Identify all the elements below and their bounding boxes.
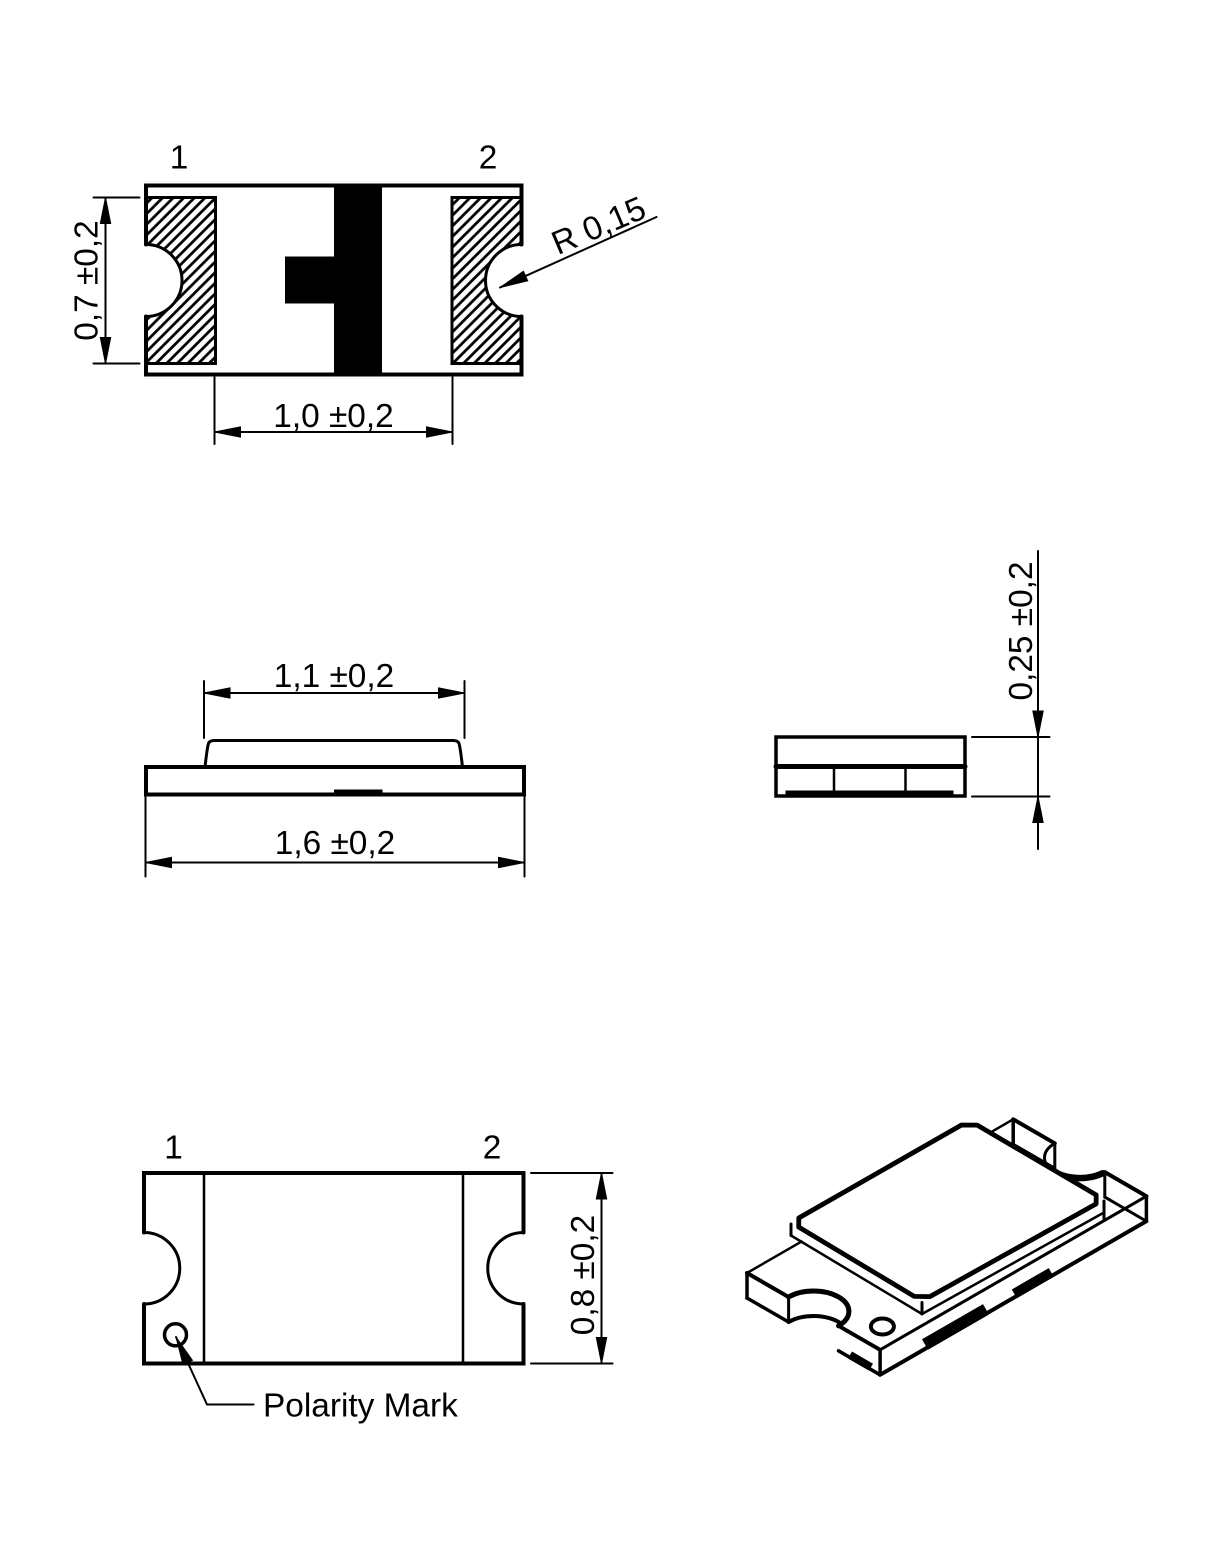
svg-text:0,8 ±0,2: 0,8 ±0,2 xyxy=(565,1215,602,1335)
svg-text:1,1 ±0,2: 1,1 ±0,2 xyxy=(274,658,394,695)
svg-text:2: 2 xyxy=(483,1129,502,1166)
svg-text:1,0 ±0,2: 1,0 ±0,2 xyxy=(273,398,393,435)
svg-text:2: 2 xyxy=(479,139,498,176)
svg-text:1,6 ±0,2: 1,6 ±0,2 xyxy=(275,825,395,862)
svg-text:0,7 ±0,2: 0,7 ±0,2 xyxy=(69,220,106,340)
svg-text:Polarity Mark: Polarity Mark xyxy=(263,1388,458,1425)
svg-text:0,25 ±0,2: 0,25 ±0,2 xyxy=(1003,561,1040,700)
svg-text:1: 1 xyxy=(164,1129,183,1166)
svg-text:1: 1 xyxy=(170,139,189,176)
